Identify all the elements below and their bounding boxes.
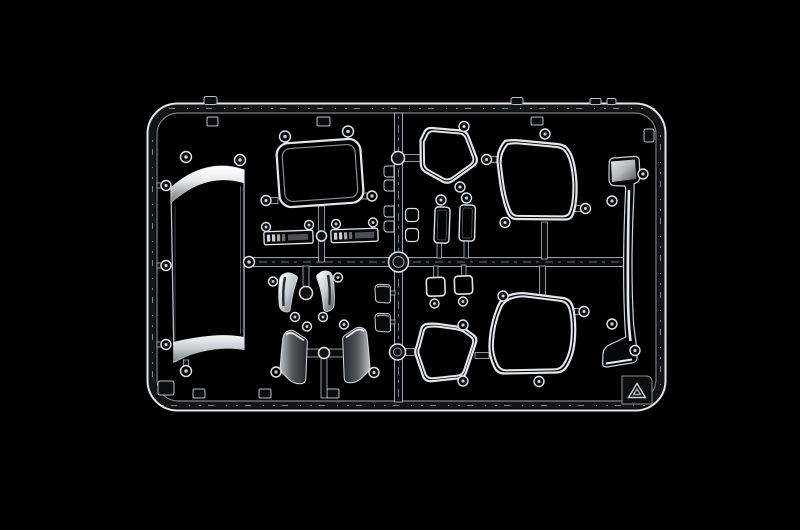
frame-tab	[327, 389, 339, 398]
gate	[581, 204, 591, 214]
deflector-right-body	[343, 327, 370, 383]
part-windscreen	[171, 166, 244, 362]
gate	[261, 196, 271, 206]
gate	[340, 320, 349, 329]
gate	[269, 277, 278, 286]
clip	[384, 221, 394, 232]
gate	[291, 313, 300, 322]
gate	[462, 193, 472, 203]
housing-upper-sheen	[377, 286, 389, 287]
part-mirror-right	[459, 205, 475, 241]
stem-door-lower	[540, 266, 546, 296]
gate	[369, 368, 379, 378]
frame-corner-plate	[158, 381, 174, 395]
gate	[262, 223, 271, 232]
part-quarter-lower	[415, 324, 476, 382]
gate	[161, 181, 171, 191]
gate	[161, 340, 171, 350]
frame-clip	[644, 129, 654, 142]
part-deflector-right	[343, 327, 370, 383]
frame-tab	[259, 389, 271, 398]
stem-corner-deflectors	[303, 266, 309, 288]
gate	[334, 273, 343, 282]
gate	[482, 155, 492, 165]
clip	[384, 206, 394, 217]
mirror-left-outline	[434, 207, 450, 244]
gate	[332, 220, 341, 229]
arm-door-lower	[475, 353, 489, 359]
runner-hub-center	[389, 252, 409, 272]
part-vent-upper	[421, 128, 477, 183]
part-deflector-left	[280, 330, 307, 384]
frame-tab	[317, 117, 330, 126]
gate	[367, 191, 377, 201]
part-square-left	[426, 277, 445, 296]
part-clips	[384, 166, 394, 232]
corner-deflector-left-body	[279, 273, 298, 312]
gate	[303, 322, 312, 331]
runner-hub-deflector-large	[319, 348, 330, 359]
sprue-photo	[0, 0, 800, 530]
frame-tab	[607, 99, 616, 105]
part-corner-deflector-right	[317, 271, 335, 312]
frame-tab	[531, 117, 543, 125]
gate	[271, 367, 281, 377]
gate	[244, 257, 255, 268]
runner-hub-deflector-small	[300, 287, 313, 300]
gate	[161, 261, 171, 271]
stem-deflectors-down	[321, 357, 327, 398]
square-right-outline	[454, 276, 473, 295]
frame-tab	[511, 98, 523, 105]
gate	[181, 366, 192, 377]
part-square-right	[454, 276, 473, 295]
gate	[638, 169, 648, 179]
door-upper-inner	[501, 143, 574, 216]
part-housing-lower	[375, 313, 395, 332]
gate	[579, 307, 589, 317]
door-lower-inner	[493, 296, 572, 370]
frame-tab	[193, 389, 205, 398]
gate	[540, 129, 550, 139]
clip	[384, 180, 394, 191]
photo-canvas	[0, 0, 800, 530]
corner-deflector-right-body	[317, 271, 335, 312]
clip	[384, 166, 394, 177]
frame-tab	[207, 117, 218, 126]
gate	[369, 218, 378, 227]
part-housing-upper	[375, 284, 395, 303]
gate	[534, 377, 544, 387]
frame-tab	[590, 99, 601, 105]
gate	[436, 195, 446, 205]
part-strip-left	[264, 230, 313, 245]
stem-mirror-right	[464, 241, 469, 258]
part-strip-right	[331, 228, 378, 243]
runner-hub-top	[392, 152, 405, 165]
tab-ring	[406, 229, 419, 242]
pillar-top-flag	[611, 160, 637, 183]
gate	[455, 182, 465, 192]
gate	[498, 291, 508, 301]
mirror-right-outline	[459, 205, 475, 241]
gate	[630, 346, 640, 356]
part-door-lower	[489, 293, 575, 373]
part-mirror-left	[434, 207, 450, 244]
gate	[458, 376, 468, 386]
runner-hub-lower	[390, 344, 406, 360]
stem-square-left	[434, 266, 439, 278]
gate	[430, 299, 439, 308]
frame-tab	[204, 97, 217, 105]
gate	[343, 126, 354, 137]
gate	[319, 313, 328, 322]
gate	[500, 218, 510, 228]
deflector-left-body	[280, 330, 307, 384]
tab-ring	[406, 209, 419, 222]
runner-hub-strips	[317, 231, 327, 241]
gate	[280, 131, 291, 142]
part-door-upper	[497, 140, 576, 219]
windscreen-body	[171, 166, 244, 362]
part-tab-rings	[406, 209, 419, 242]
stem-mirror-left	[437, 243, 442, 258]
square-left-outline	[426, 277, 445, 296]
gate	[305, 221, 314, 230]
housing-lower-sheen	[377, 315, 389, 316]
gate	[459, 122, 469, 132]
gate	[607, 319, 617, 329]
part-recycle-mark	[622, 376, 652, 404]
gate	[235, 155, 246, 166]
stem-door-upper	[542, 222, 548, 259]
part-roof-window	[276, 138, 364, 208]
gate	[458, 320, 468, 330]
gate	[607, 196, 617, 206]
gate	[459, 297, 468, 306]
part-corner-deflector-left	[279, 273, 298, 312]
gate	[181, 152, 192, 163]
